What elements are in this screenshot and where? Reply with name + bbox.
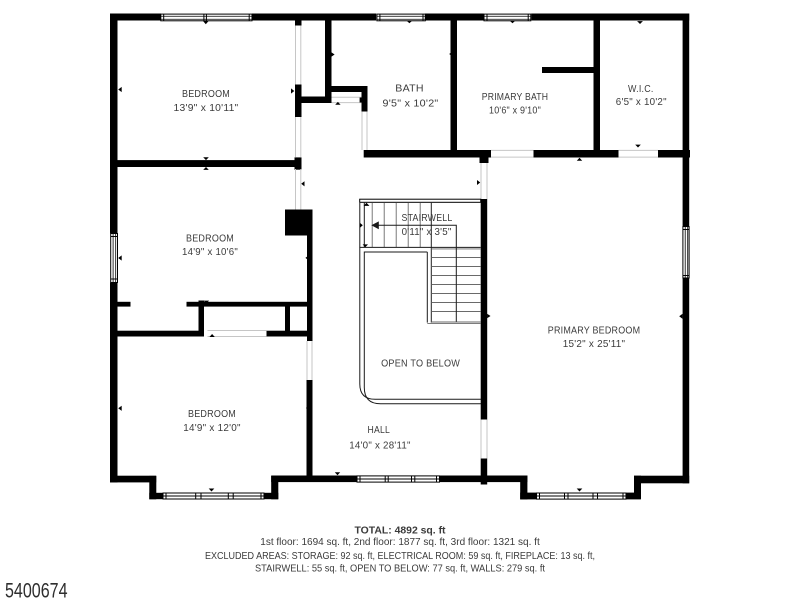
svg-text:1st floor: 1694 sq. ft, 2nd fl: 1st floor: 1694 sq. ft, 2nd floor: 1877 … (260, 537, 540, 548)
svg-text:OPEN TO BELOW: OPEN TO BELOW (381, 359, 460, 370)
svg-text:14'9" x 10'6": 14'9" x 10'6" (182, 247, 238, 258)
svg-text:14'0" x 28'11": 14'0" x 28'11" (349, 440, 411, 451)
svg-text:BATH: BATH (395, 84, 424, 95)
svg-text:5400674: 5400674 (5, 579, 68, 601)
svg-text:9'5" x 10'2": 9'5" x 10'2" (383, 99, 439, 110)
svg-text:HALL: HALL (368, 425, 391, 436)
svg-text:W.I.C.: W.I.C. (628, 84, 654, 95)
svg-text:BEDROOM: BEDROOM (188, 409, 236, 420)
svg-text:PRIMARY BEDROOM: PRIMARY BEDROOM (548, 326, 641, 337)
svg-text:14'9" x 12'0": 14'9" x 12'0" (183, 423, 241, 434)
svg-text:EXCLUDED AREAS: STORAGE: 92 sq: EXCLUDED AREAS: STORAGE: 92 sq. ft, ELEC… (205, 551, 595, 562)
svg-text:0'11" x 3'5": 0'11" x 3'5" (402, 227, 452, 238)
svg-text:15'2" x 25'11": 15'2" x 25'11" (563, 339, 626, 350)
svg-text:BEDROOM: BEDROOM (182, 89, 230, 100)
svg-text:STAIRWELL: STAIRWELL (402, 213, 453, 224)
svg-text:STAIRWELL: 55 sq. ft, OPEN TO: STAIRWELL: 55 sq. ft, OPEN TO BELOW: 77 … (255, 564, 545, 575)
svg-text:BEDROOM: BEDROOM (186, 234, 234, 245)
svg-text:13'9" x 10'11": 13'9" x 10'11" (174, 103, 239, 114)
svg-text:10'6" x 9'10": 10'6" x 9'10" (489, 106, 541, 117)
svg-text:6'5" x 10'2": 6'5" x 10'2" (616, 97, 667, 108)
svg-text:PRIMARY BATH: PRIMARY BATH (482, 92, 549, 103)
svg-text:TOTAL: 4892 sq. ft: TOTAL: 4892 sq. ft (355, 526, 447, 537)
